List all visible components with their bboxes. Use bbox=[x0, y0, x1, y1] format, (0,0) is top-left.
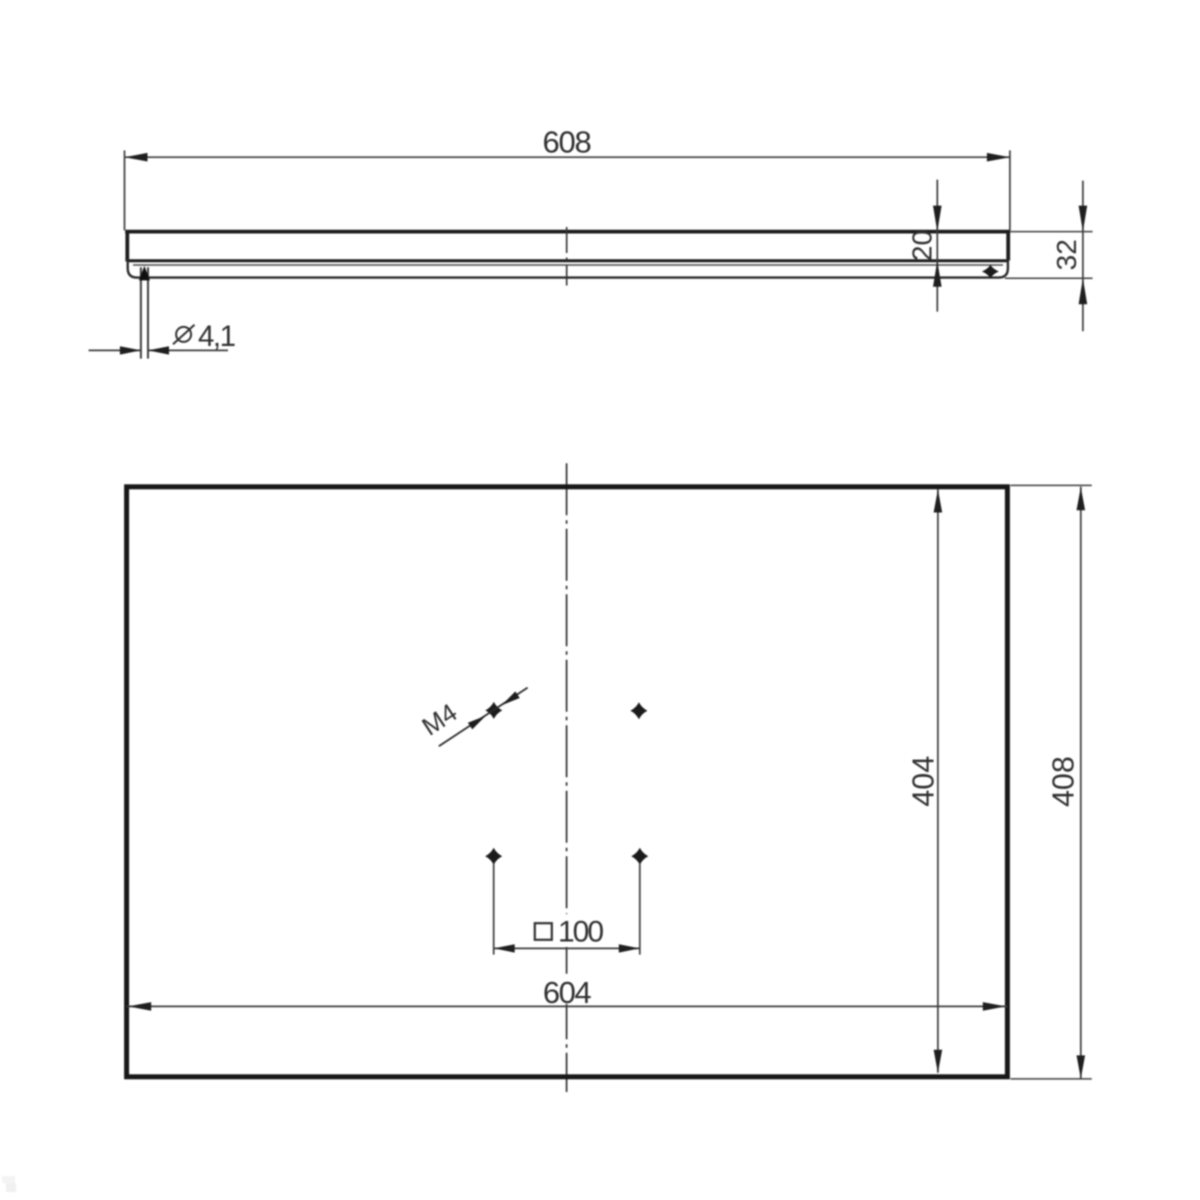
svg-text:608: 608 bbox=[542, 124, 590, 159]
svg-text:408: 408 bbox=[1047, 756, 1081, 807]
svg-text:604: 604 bbox=[543, 975, 591, 1010]
svg-text:4,1: 4,1 bbox=[198, 320, 235, 353]
svg-text:404: 404 bbox=[907, 756, 941, 807]
svg-text:20: 20 bbox=[907, 230, 938, 261]
svg-text:100: 100 bbox=[558, 916, 603, 949]
svg-text:32: 32 bbox=[1051, 239, 1082, 270]
